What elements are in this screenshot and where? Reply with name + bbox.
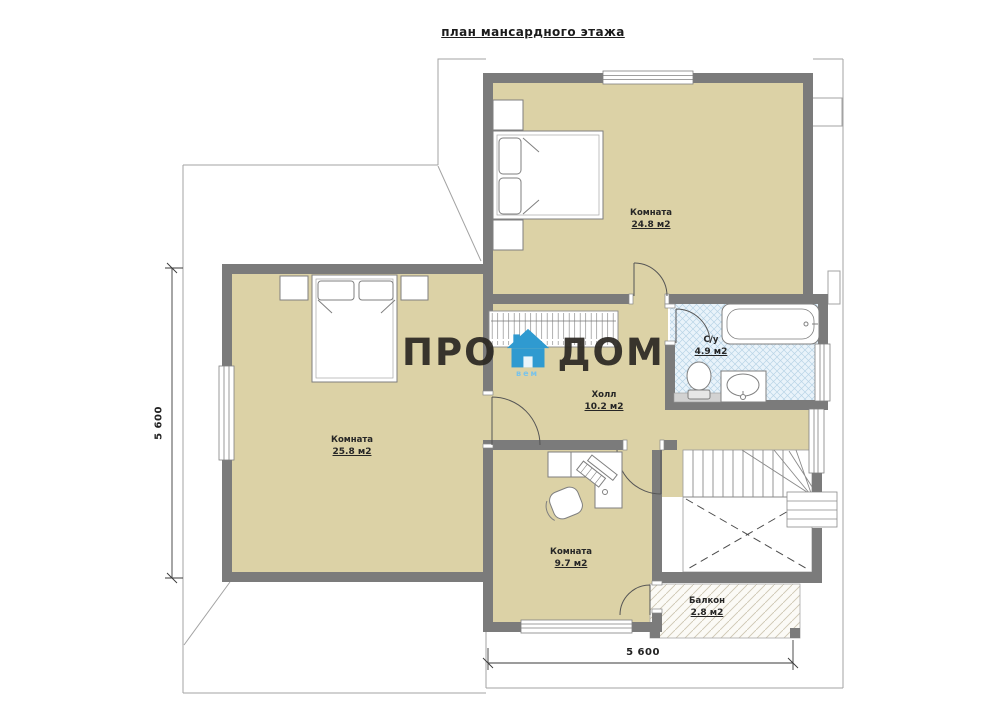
floor-stair-strip	[662, 450, 683, 497]
floor-hall-corridor	[668, 404, 812, 453]
window-bath-right	[815, 344, 830, 401]
room-label-24-8: Комната 24.8 м2	[630, 208, 672, 231]
room-label-balcony: Балкон 2.8 м2	[689, 596, 725, 619]
watermark-text-pro: ПРО	[402, 331, 498, 374]
double-bed-icon	[312, 275, 397, 382]
house-icon	[505, 328, 551, 372]
roof-detail	[828, 271, 840, 304]
dimension-line-left	[165, 263, 183, 583]
sink-icon	[721, 371, 766, 402]
room-label-hall: Холл 10.2 м2	[585, 390, 624, 413]
window-left	[219, 366, 234, 460]
room-label-25-8: Комната 25.8 м2	[331, 435, 373, 458]
watermark-text-dom: ДОМ	[558, 331, 665, 374]
balcony-area	[650, 584, 800, 638]
balcony-post	[790, 628, 800, 638]
window-top	[603, 71, 693, 84]
roof-detail	[812, 98, 842, 126]
toilet-icon	[687, 362, 711, 399]
dimension-bottom-value: 5 600	[626, 647, 660, 658]
nightstand-icon	[401, 276, 428, 300]
nightstand-icon	[493, 220, 523, 250]
floor-plan-page: план мансардного этажа	[0, 0, 1000, 708]
double-bed-icon	[493, 131, 603, 219]
dimension-left-value: 5 600	[154, 406, 165, 440]
stair-outer-steps	[787, 492, 837, 527]
watermark-subtext: вем	[516, 369, 539, 378]
house-icon-wrap: вем	[505, 328, 551, 378]
nightstand-icon	[493, 100, 523, 130]
nightstand-icon	[280, 276, 308, 300]
balcony-hatch	[650, 584, 800, 638]
watermark: ПРО вем ДОМ	[402, 326, 665, 378]
room-label-bathroom: С/у 4.9 м2	[695, 335, 728, 358]
window-bottom	[521, 620, 632, 633]
window-hall-right	[809, 409, 824, 473]
room-label-9-7: Комната 9.7 м2	[550, 547, 592, 570]
bathtub-icon	[722, 304, 819, 344]
